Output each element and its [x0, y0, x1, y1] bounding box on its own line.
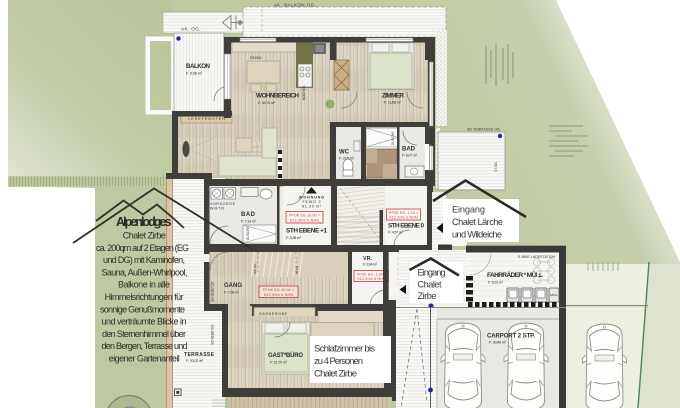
svg-text:F: 7,14 m²: F: 7,14 m² [241, 220, 257, 224]
svg-text:und Wildeiche: und Wildeiche [452, 230, 502, 240]
svg-text:STH EBENE +1: STH EBENE +1 [286, 228, 327, 235]
svg-text:WH OG: WH OG [253, 263, 257, 274]
svg-text:und DG) mit Kaminofen,: und DG) mit Kaminofen, [103, 255, 185, 265]
svg-text:AK TERRASSE OG.: AK TERRASSE OG. [467, 128, 501, 132]
svg-text:GARDEROBE: GARDEROBE [259, 312, 288, 316]
svg-text:Sauna, Außen-Whirlpool,: Sauna, Außen-Whirlpool, [102, 267, 188, 277]
svg-text:F: 8,91 m²: F: 8,91 m² [488, 281, 504, 285]
svg-text:BALKON: BALKON [186, 63, 211, 70]
svg-text:613,40m ü.NHN: 613,40m ü.NHN [290, 218, 319, 222]
svg-text:WMTR: WMTR [210, 207, 224, 211]
svg-text:den Sternenhimmel über: den Sternenhimmel über [102, 329, 186, 339]
svg-text:F: 11,68 m²: F: 11,68 m² [384, 101, 402, 105]
svg-text:F: 6,07 m²: F: 6,07 m² [402, 154, 418, 158]
svg-text:PFOK EG ±0.00 =: PFOK EG ±0.00 = [289, 214, 320, 218]
svg-text:KOCHEN: KOCHEN [302, 85, 306, 100]
svg-text:Eingang: Eingang [452, 205, 485, 215]
svg-text:AK. OG.: AK. OG. [181, 27, 201, 32]
svg-text:eigener Gartenanteil: eigener Gartenanteil [109, 354, 180, 364]
svg-text:Eingang: Eingang [418, 267, 446, 277]
svg-text:zu 4 Personen: zu 4 Personen [314, 356, 363, 367]
svg-text:Himmelsrichtungen für: Himmelsrichtungen für [105, 292, 184, 302]
svg-text:61,30 m²: 61,30 m² [302, 205, 322, 209]
svg-text:F: 6,58 m²: F: 6,58 m² [186, 72, 203, 76]
svg-text:DUSCHE: DUSCHE [246, 227, 250, 240]
svg-text:IN EG: IN EG [295, 265, 299, 274]
svg-text:F: 21,70 m²: F: 21,70 m² [270, 361, 288, 365]
svg-text:Zirbe: Zirbe [418, 291, 437, 301]
svg-text:GANG: GANG [224, 283, 242, 289]
svg-text:ca. 200qm auf 2 Etagen (EG: ca. 200qm auf 2 Etagen (EG [96, 243, 189, 253]
svg-text:Schlafzimmer bis: Schlafzimmer bis [314, 344, 375, 355]
svg-text:F: 34,70 m²: F: 34,70 m² [258, 101, 276, 105]
svg-text:sonnige Genußmomente: sonnige Genußmomente [100, 304, 185, 314]
svg-text:WOHNUNG: WOHNUNG [299, 196, 324, 200]
svg-text:Balkone in alle: Balkone in alle [118, 280, 170, 290]
svg-text:FFOK EG ±0.00 =: FFOK EG ±0.00 = [263, 288, 294, 292]
svg-text:PFOK EG -1,20 =: PFOK EG -1,20 = [389, 211, 418, 215]
svg-text:613,40m ü.NHN: 613,40m ü.NHN [264, 293, 293, 297]
svg-text:SCHIEBETÜR: SCHIEBETÜR [211, 324, 215, 345]
svg-text:Chalet Zirbe: Chalet Zirbe [123, 230, 166, 240]
svg-text:WC: WC [339, 150, 350, 156]
svg-text:BAD: BAD [241, 212, 256, 218]
svg-text:GAST*BÜRO: GAST*BÜRO [268, 352, 303, 359]
svg-text:TERRASSE: TERRASSE [184, 352, 215, 358]
svg-text:CARPORT 2 STP.: CARPORT 2 STP. [487, 334, 535, 340]
svg-text:BAD: BAD [402, 147, 416, 153]
svg-text:F: 20,02 m²: F: 20,02 m² [186, 359, 204, 363]
svg-text:F: 3,64 m²: F: 3,64 m² [363, 263, 378, 267]
svg-text:FEWO 2: FEWO 2 [303, 200, 321, 204]
svg-text:SCHIEBETÜR: SCHIEBETÜR [211, 281, 215, 302]
svg-text:den Bergen, Terrasse und: den Bergen, Terrasse und [102, 341, 188, 351]
svg-text:Chalet Zirbe: Chalet Zirbe [314, 369, 357, 380]
svg-text:612,20m ü.NHN: 612,20m ü.NHN [390, 215, 418, 219]
svg-text:ESSEN: ESSEN [250, 56, 262, 60]
svg-text:DUSCHE: DUSCHE [391, 132, 395, 145]
svg-text:Chalet: Chalet [418, 280, 442, 290]
svg-text:Alpenlodges: Alpenlodges [116, 215, 172, 229]
svg-text:612,20m ü.NHN: 612,20m ü.NHN [358, 277, 386, 281]
svg-text:STH EBENE 0: STH EBENE 0 [388, 223, 424, 230]
svg-text:AK. BALKON OG.: AK. BALKON OG. [274, 3, 317, 8]
svg-text:ST OG.: ST OG. [494, 161, 498, 172]
svg-text:F: 7,09 m²: F: 7,09 m² [224, 291, 240, 295]
svg-text:F: 30,49 m²: F: 30,49 m² [489, 341, 507, 345]
svg-text:WOHNBEREICH: WOHNBEREICH [256, 93, 299, 100]
svg-text:VR.: VR. [363, 256, 372, 262]
svg-text:VORSORGE: VORSORGE [210, 202, 236, 206]
svg-text:MÜLL: MÜLL [550, 293, 558, 297]
svg-text:ZIMMER: ZIMMER [382, 93, 404, 100]
svg-text:FFOK EG -1,20 =: FFOK EG -1,20 = [357, 272, 386, 276]
svg-text:Chalet Lärche: Chalet Lärche [452, 217, 503, 227]
svg-text:und verträumte Blicke in: und verträumte Blicke in [102, 317, 187, 327]
svg-text:F: 5,38 m²: F: 5,38 m² [286, 236, 302, 240]
